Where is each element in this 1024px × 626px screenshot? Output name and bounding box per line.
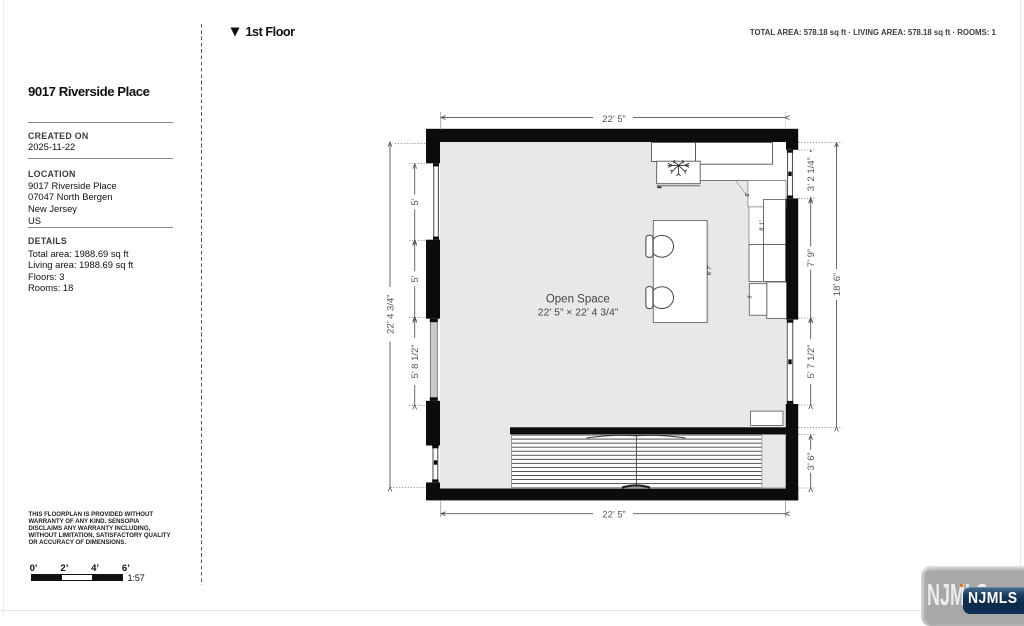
- svg-text:3’: 3’: [748, 295, 754, 299]
- svg-text:5’: 5’: [410, 275, 421, 282]
- svg-text:22’ 4 3/4”: 22’ 4 3/4”: [386, 295, 397, 334]
- svg-text:7’ 9”: 7’ 9”: [806, 249, 817, 267]
- svg-text:22’ 5”: 22’ 5”: [602, 509, 625, 520]
- svg-text:8’ 7”: 8’ 7”: [707, 265, 713, 276]
- svg-text:2’: 2’: [745, 193, 751, 197]
- svg-text:3’ 6”: 3’ 6”: [806, 452, 817, 470]
- svg-text:5’ 7 1/2”: 5’ 7 1/2”: [806, 345, 817, 379]
- svg-text:18’ 6”: 18’ 6”: [832, 273, 843, 296]
- svg-text:8’ 1”: 8’ 1”: [760, 220, 766, 231]
- svg-text:Open Space: Open Space: [546, 293, 610, 305]
- svg-text:5’ 8 1/2”: 5’ 8 1/2”: [410, 345, 421, 379]
- svg-text:22’ 5”: 22’ 5”: [602, 114, 625, 125]
- svg-text:5’: 5’: [410, 198, 421, 205]
- svg-text:22’ 5” × 22’ 4 3/4”: 22’ 5” × 22’ 4 3/4”: [538, 308, 619, 319]
- svg-text:3’ 2 1/4”: 3’ 2 1/4”: [806, 157, 817, 191]
